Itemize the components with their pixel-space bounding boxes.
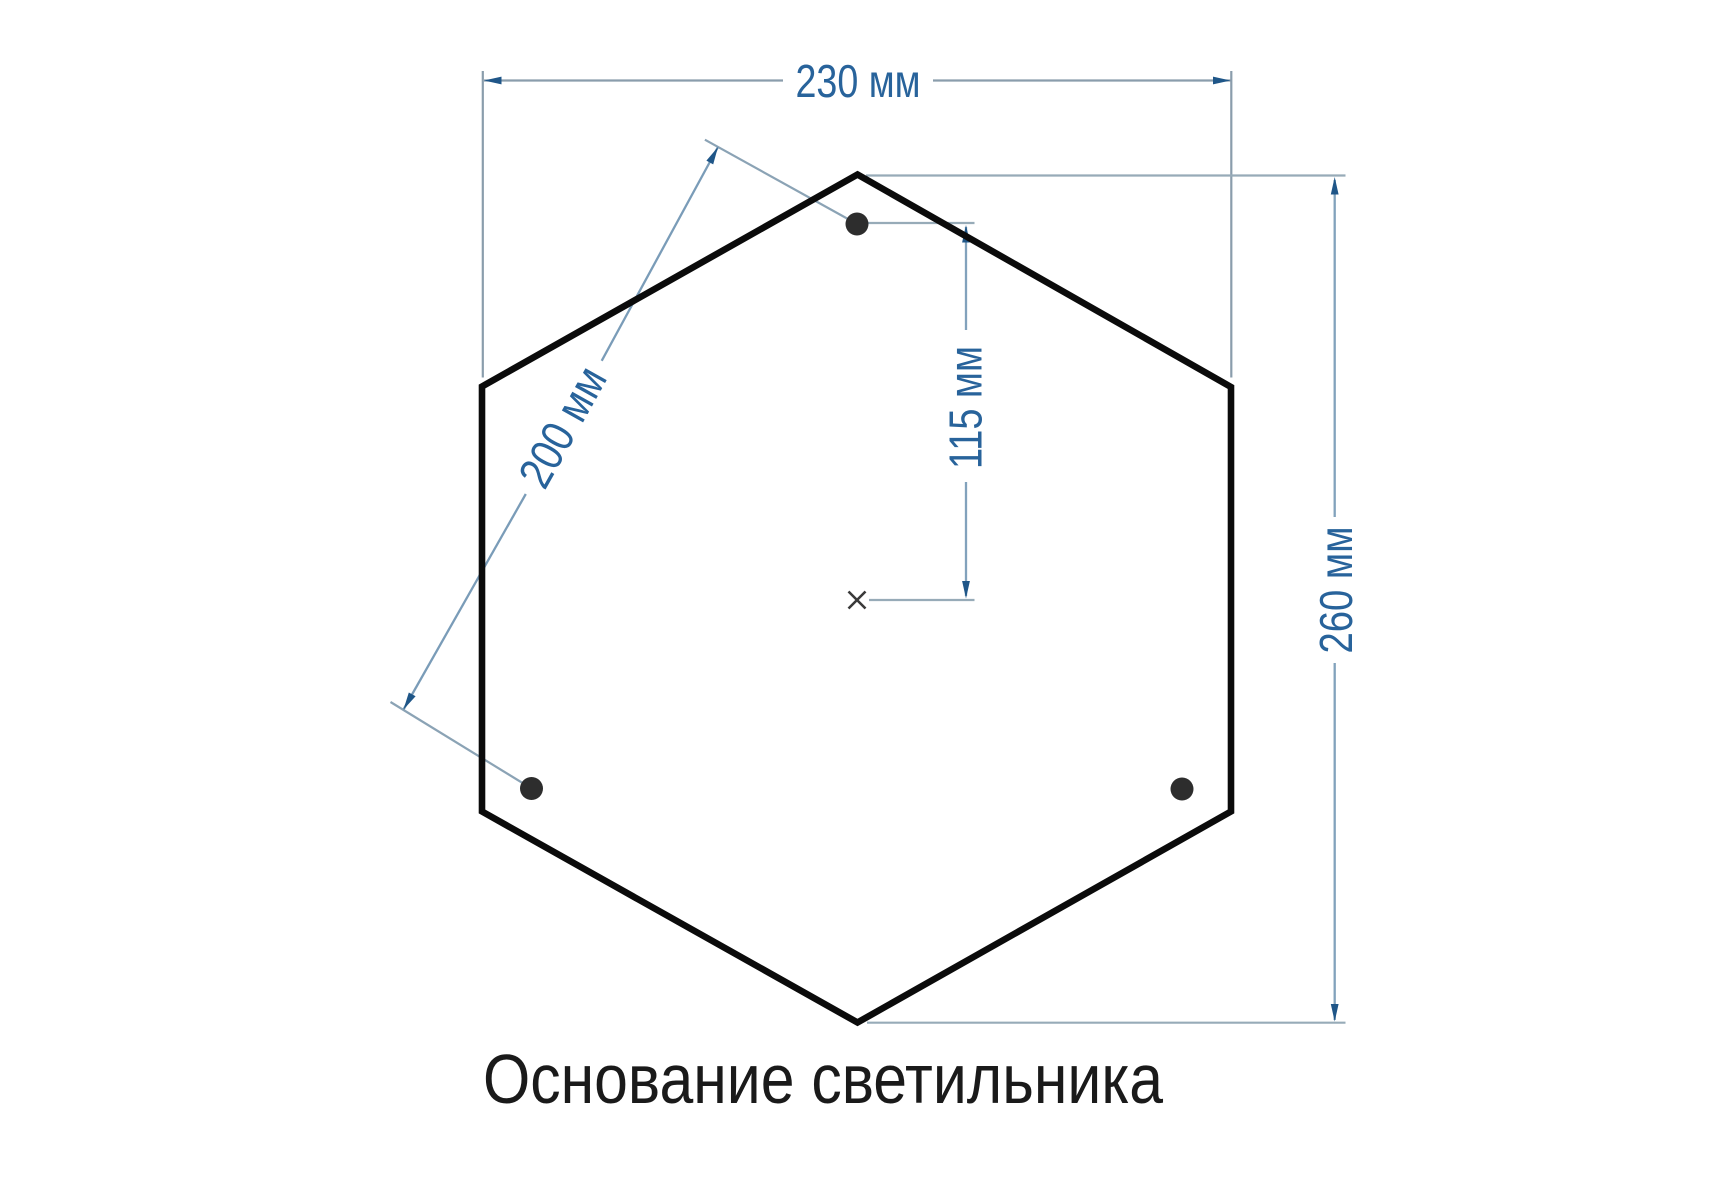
svg-text:260 мм: 260 мм bbox=[1310, 527, 1362, 654]
svg-text:115 мм: 115 мм bbox=[940, 346, 992, 469]
svg-text:Основание светильника: Основание светильника bbox=[483, 1040, 1163, 1118]
svg-text:230 мм: 230 мм bbox=[796, 55, 921, 107]
